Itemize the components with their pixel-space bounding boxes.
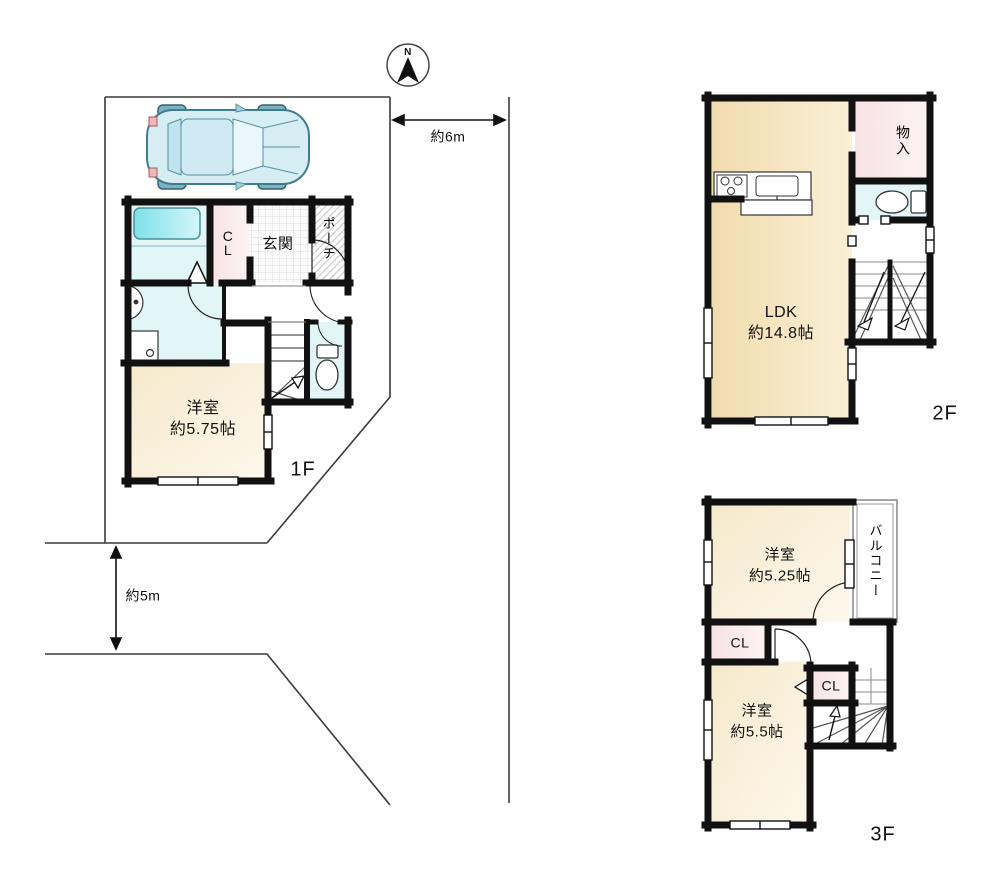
ldk-2f — [712, 101, 852, 421]
floor2-tag: 2F — [932, 402, 957, 427]
western-room1-3f-label: 洋室 — [764, 547, 795, 566]
washing-machine-icon — [129, 331, 158, 362]
storage-label: 物入 — [893, 125, 913, 157]
ldk-label: LDK — [765, 303, 798, 323]
staircase-1f — [268, 322, 306, 402]
floorplan-page: N 約6m 約5m CL 玄関 ポーチ 洋室 約5.75帖 1F LDK 約14… — [0, 0, 1000, 882]
floor3-tag: 3F — [870, 823, 895, 848]
western-room2-3f-size: 約5.5帖 — [730, 724, 783, 743]
car-icon — [147, 104, 309, 190]
ldk-size: 約14.8帖 — [748, 324, 814, 344]
floorplan-drawing — [0, 0, 1000, 882]
depth-dimension-label: 約5m — [126, 587, 161, 605]
floor1-rooms — [128, 202, 348, 481]
balcony-label: バルコニー — [866, 524, 885, 599]
dimension-arrow-depth — [111, 547, 121, 649]
entrance-label: 玄関 — [262, 236, 293, 255]
toilet-icon-2f — [876, 191, 926, 213]
porch-label: ポーチ — [319, 217, 338, 262]
toilet-icon-1f — [316, 345, 338, 390]
western-room2-3f-label: 洋室 — [741, 703, 772, 722]
closet1-3f-label: CL — [731, 634, 750, 652]
floor1-tag: 1F — [290, 458, 315, 483]
western-room-1f-size: 約5.75帖 — [170, 420, 236, 440]
western-room-1f-label: 洋室 — [186, 399, 219, 419]
north-label: N — [404, 47, 412, 60]
closet-1f-label: CL — [221, 229, 236, 257]
dimension-arrow-width — [393, 115, 505, 125]
closet2-3f-label: CL — [822, 677, 841, 695]
western-room1-3f-size: 約5.25帖 — [749, 568, 811, 587]
width-dimension-label: 約6m — [431, 128, 466, 146]
